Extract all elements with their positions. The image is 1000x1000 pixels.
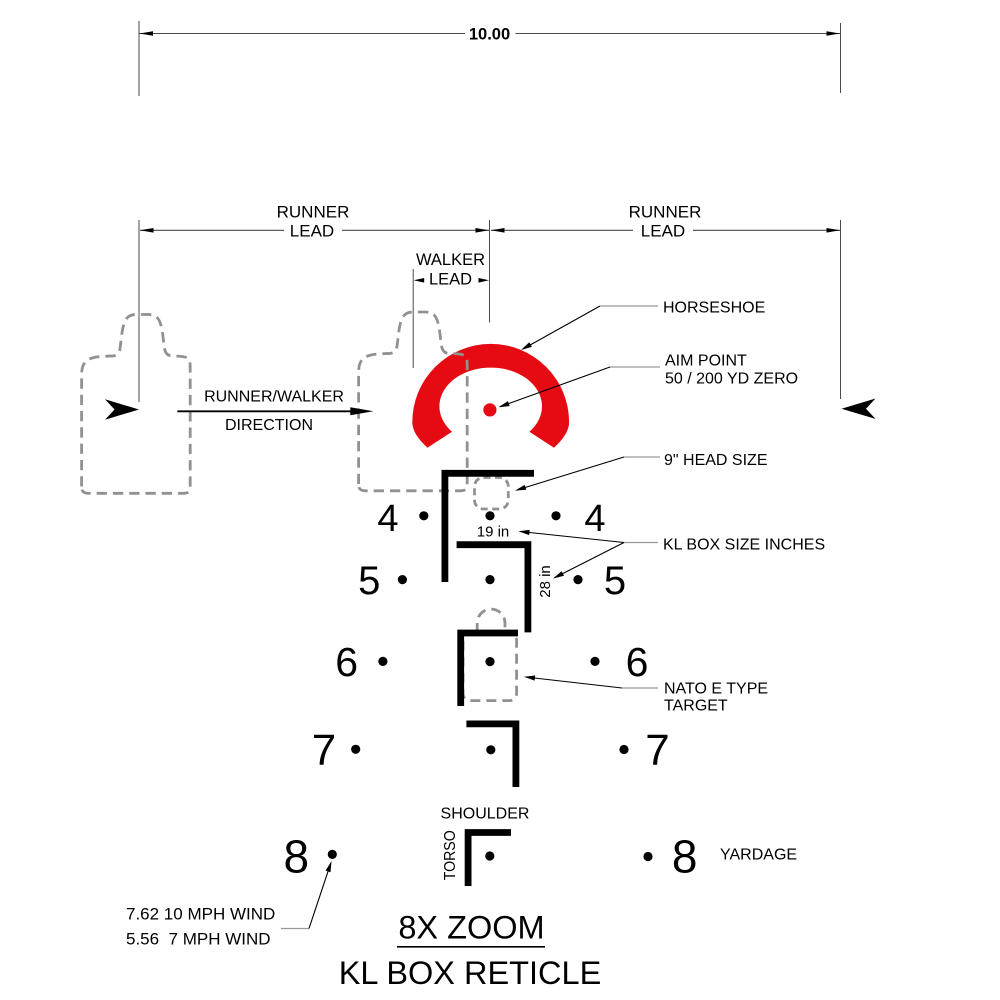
svg-text:7.62 10 MPH WIND: 7.62 10 MPH WIND xyxy=(126,905,275,924)
svg-text:KL BOX SIZE INCHES: KL BOX SIZE INCHES xyxy=(663,537,825,554)
svg-text:KL BOX RETICLE: KL BOX RETICLE xyxy=(339,955,602,991)
svg-text:LEAD: LEAD xyxy=(641,222,685,241)
svg-text:TARGET: TARGET xyxy=(664,698,728,715)
svg-text:50 / 200 YD ZERO: 50 / 200 YD ZERO xyxy=(665,371,798,388)
svg-text:6: 6 xyxy=(335,639,358,685)
svg-text:LEAD: LEAD xyxy=(290,222,334,241)
svg-text:7: 7 xyxy=(312,726,336,775)
svg-text:6: 6 xyxy=(626,639,649,685)
svg-text:DIRECTION: DIRECTION xyxy=(225,417,313,434)
svg-text:YARDAGE: YARDAGE xyxy=(720,847,797,864)
svg-text:7: 7 xyxy=(645,726,669,775)
svg-text:4: 4 xyxy=(377,498,398,540)
svg-text:5.56 7 MPH WIND: 5.56 7 MPH WIND xyxy=(126,930,271,949)
svg-text:8X ZOOM: 8X ZOOM xyxy=(398,910,544,946)
svg-text:RUNNER: RUNNER xyxy=(277,203,350,222)
svg-text:NATO E TYPE: NATO E TYPE xyxy=(664,681,768,698)
svg-text:HORSESHOE: HORSESHOE xyxy=(663,300,765,317)
svg-text:5: 5 xyxy=(358,559,380,603)
svg-text:SHOULDER: SHOULDER xyxy=(441,806,530,823)
svg-text:RUNNER: RUNNER xyxy=(629,203,702,222)
svg-text:9" HEAD SIZE: 9" HEAD SIZE xyxy=(664,452,767,469)
svg-text:19 in: 19 in xyxy=(477,524,510,541)
svg-text:TORSO: TORSO xyxy=(442,830,459,880)
svg-text:8: 8 xyxy=(672,831,698,883)
svg-text:4: 4 xyxy=(584,498,605,540)
svg-text:LEAD: LEAD xyxy=(429,271,472,289)
svg-text:5: 5 xyxy=(604,559,626,603)
svg-text:WALKER: WALKER xyxy=(416,251,485,269)
svg-text:8: 8 xyxy=(284,831,310,883)
svg-text:AIM POINT: AIM POINT xyxy=(665,353,747,370)
svg-text:10.00: 10.00 xyxy=(469,26,510,44)
svg-text:RUNNER/WALKER: RUNNER/WALKER xyxy=(204,389,344,406)
svg-text:28 in: 28 in xyxy=(537,565,554,598)
